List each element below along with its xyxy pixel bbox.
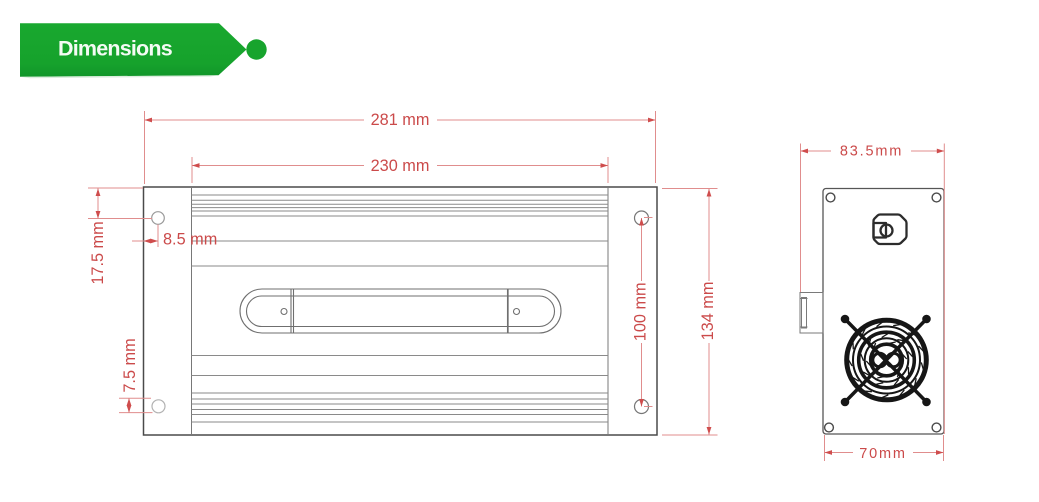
svg-text:Dimensions: Dimensions — [58, 37, 173, 61]
svg-text:281 mm: 281 mm — [371, 111, 430, 129]
svg-text:83.5mm: 83.5mm — [840, 144, 903, 160]
svg-text:70mm: 70mm — [859, 446, 907, 462]
svg-text:134 mm: 134 mm — [699, 282, 717, 341]
svg-text:17.5 mm: 17.5 mm — [89, 221, 107, 284]
svg-text:7.5 mm: 7.5 mm — [121, 338, 139, 392]
svg-text:230 mm: 230 mm — [371, 157, 430, 175]
svg-text:100 mm: 100 mm — [632, 282, 650, 341]
svg-text:8.5 mm: 8.5 mm — [163, 231, 217, 249]
